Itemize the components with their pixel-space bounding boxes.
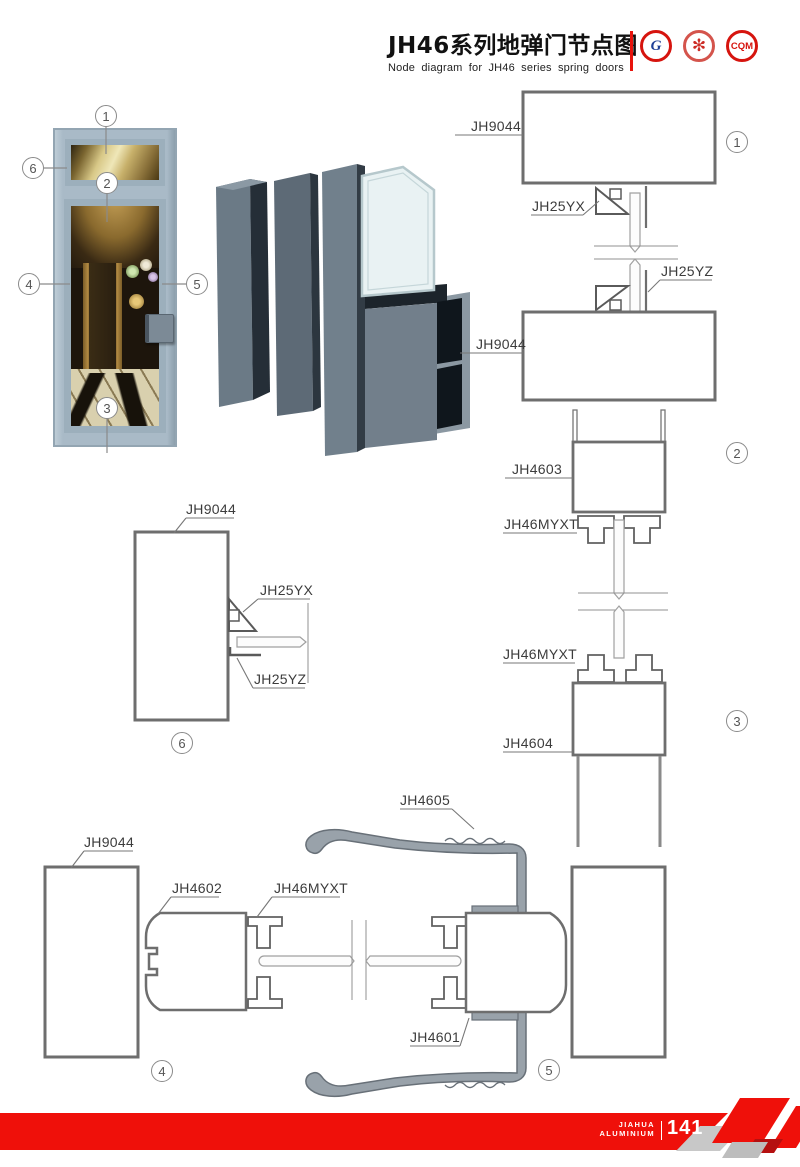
page-title: JH46系列地弹门节点图: [388, 26, 628, 60]
photo-callout-4: 4: [18, 273, 40, 295]
detail-number-3: 3: [726, 710, 748, 732]
label-jh4601-d5: JH4601: [410, 1029, 460, 1045]
page-number: 141: [667, 1117, 703, 1140]
gb-certification-icon: G: [640, 30, 672, 62]
footer-brand-top: JIAHUA: [560, 1120, 655, 1129]
footer-separator: [661, 1121, 662, 1140]
footer-brand-bottom: ALUMINIUM: [560, 1129, 655, 1138]
cqm-certification-icon: CQM: [726, 30, 758, 62]
seal-certification-icon: ✻: [683, 30, 715, 62]
detail-number-1: 1: [726, 131, 748, 153]
label-jh9044-d1: JH9044: [471, 118, 521, 134]
header-red-divider: [630, 31, 633, 71]
detail-3-section: [503, 606, 665, 1057]
label-jh4604-d3: JH4604: [503, 735, 553, 751]
photo-callout-5: 5: [186, 273, 208, 295]
label-jh9044-d2: JH9044: [476, 336, 526, 352]
label-jh9044-d6: JH9044: [186, 501, 236, 517]
label-jh46myxt-d2: JH46MYXT: [504, 516, 578, 532]
detail-number-5: 5: [538, 1059, 560, 1081]
label-jh4605-d5: JH4605: [400, 792, 450, 808]
label-jh9044-d4: JH9044: [84, 834, 134, 850]
photo-callout-2: 2: [96, 172, 118, 194]
label-jh25yz-d1: JH25YZ: [661, 263, 713, 279]
page-subtitle: Node diagram for JH46 series spring door…: [388, 62, 628, 74]
door-handle: [145, 314, 174, 343]
cover-profile-jh4605: [306, 830, 526, 1097]
detail-2-section: [460, 312, 715, 610]
label-jh4602-d4: JH4602: [172, 880, 222, 896]
catalog-page: JH46系列地弹门节点图 Node diagram for JH46 serie…: [0, 0, 800, 1167]
certification-logos: G ✻ CQM: [640, 30, 758, 62]
detail-number-2: 2: [726, 442, 748, 464]
detail-number-4: 4: [151, 1060, 173, 1082]
photo-callout-1: 1: [95, 105, 117, 127]
photo-callout-3: 3: [96, 397, 118, 419]
detail-number-6: 6: [171, 732, 193, 754]
photo-callout-6: 6: [22, 157, 44, 179]
label-jh25yx-d1: JH25YX: [532, 198, 585, 214]
detail-6-section: [135, 518, 310, 720]
label-jh46myxt-d3: JH46MYXT: [503, 646, 577, 662]
label-jh25yz-d6: JH25YZ: [254, 671, 306, 687]
assembly-3d-render: [216, 164, 470, 456]
label-jh46myxt-d4: JH46MYXT: [274, 880, 348, 896]
footer-brand: JIAHUA ALUMINIUM: [560, 1120, 655, 1138]
detail-5-section: [306, 809, 566, 1096]
page-header: JH46系列地弹门节点图 Node diagram for JH46 serie…: [388, 26, 628, 74]
label-jh4603-d2: JH4603: [512, 461, 562, 477]
label-jh25yx-d6: JH25YX: [260, 582, 313, 598]
